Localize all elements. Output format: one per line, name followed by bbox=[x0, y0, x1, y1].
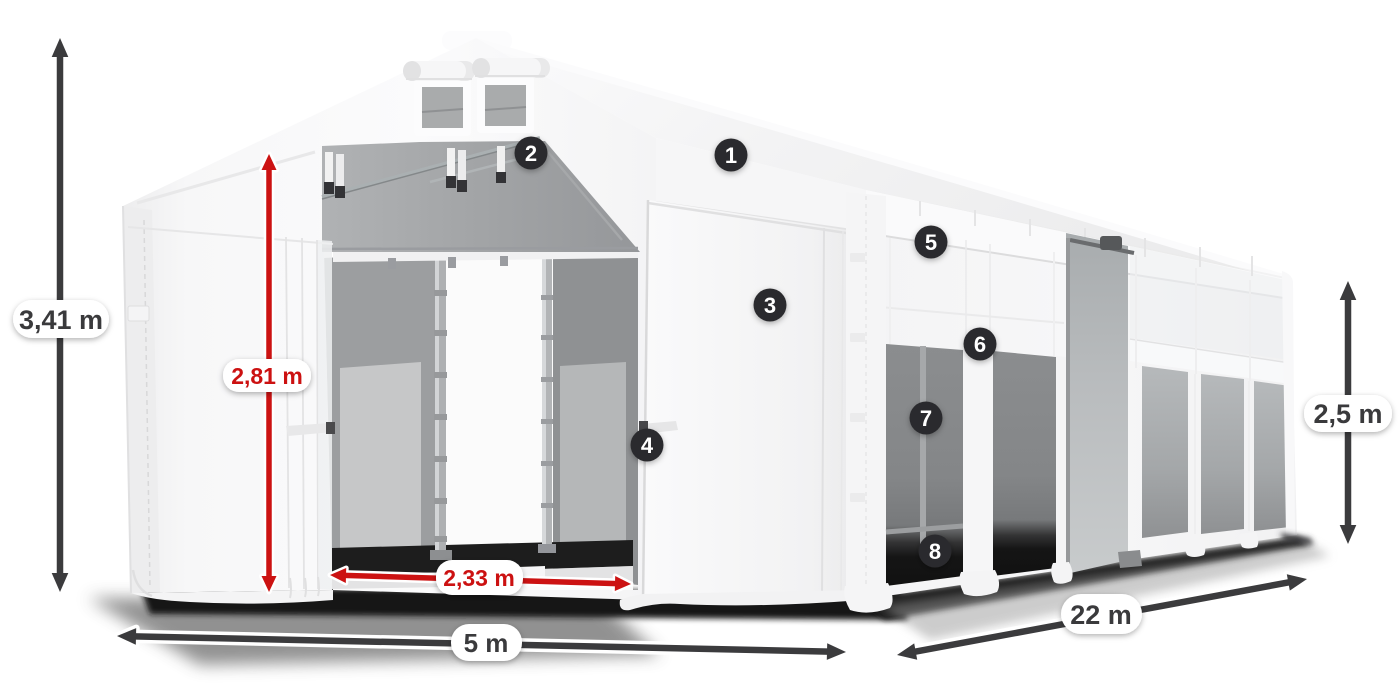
svg-text:6: 6 bbox=[974, 332, 986, 357]
svg-text:7: 7 bbox=[920, 406, 932, 431]
svg-text:4: 4 bbox=[641, 433, 654, 458]
svg-text:3,41 m: 3,41 m bbox=[19, 305, 103, 335]
svg-text:8: 8 bbox=[929, 539, 941, 564]
svg-text:2,5 m: 2,5 m bbox=[1313, 399, 1382, 429]
svg-text:1: 1 bbox=[725, 143, 737, 168]
svg-text:2: 2 bbox=[525, 141, 537, 166]
svg-text:5: 5 bbox=[925, 230, 937, 255]
svg-text:5 m: 5 m bbox=[464, 628, 509, 658]
svg-text:3: 3 bbox=[764, 293, 776, 318]
svg-text:22 m: 22 m bbox=[1070, 600, 1132, 630]
svg-text:2,81 m: 2,81 m bbox=[231, 363, 303, 389]
svg-text:2,33 m: 2,33 m bbox=[443, 565, 515, 591]
